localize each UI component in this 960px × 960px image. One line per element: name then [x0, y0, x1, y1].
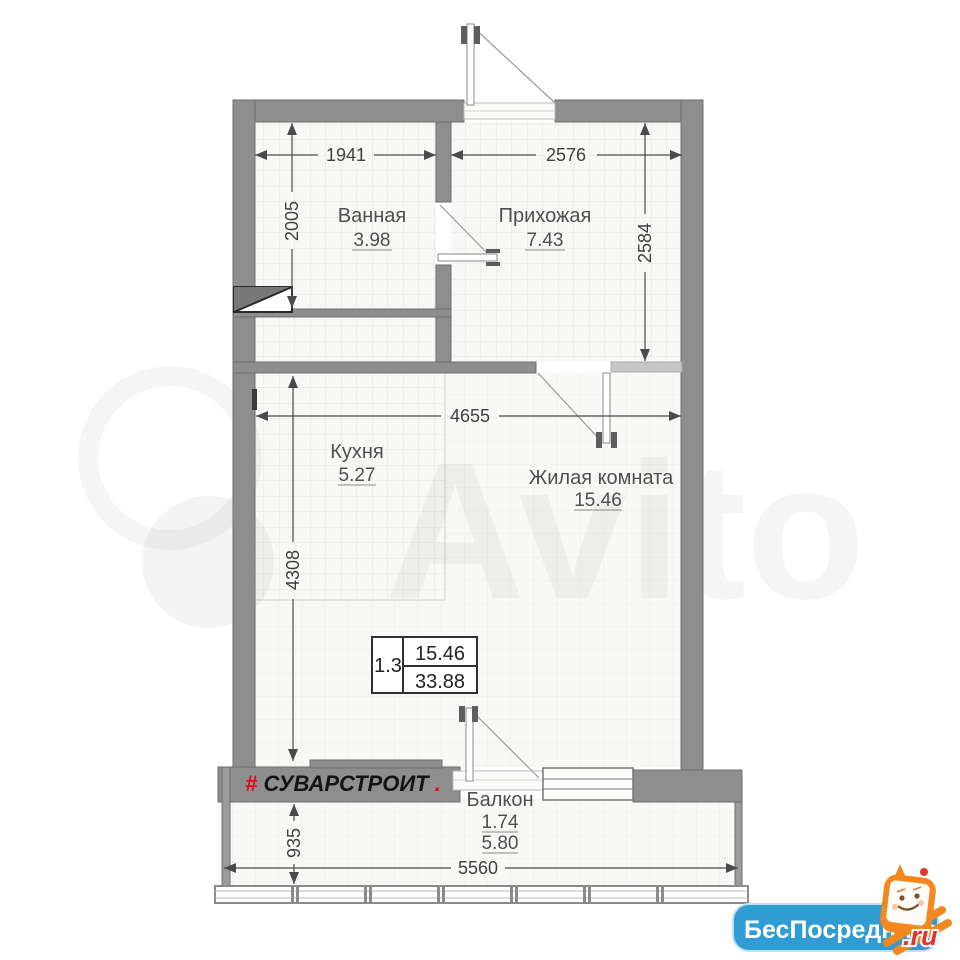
balcony-door-hinge	[459, 706, 465, 722]
wall-left	[233, 100, 255, 767]
wall-top-left	[233, 100, 464, 122]
balcony-door-hinge2	[472, 706, 478, 722]
room-area-balcony-reduced: 1.74	[482, 812, 519, 833]
room-label-hallway: Прихожая	[499, 205, 592, 227]
room-area-bathroom: 3.98	[354, 230, 391, 251]
room-label-kitchen: Кухня	[330, 441, 384, 463]
balcony-railing	[215, 886, 748, 903]
site-badge-tld: .ru	[903, 921, 938, 951]
room-area-hallway: 7.43	[527, 230, 564, 251]
room-area-balcony-full: 5.80	[482, 833, 519, 854]
room-area-living: 15.46	[574, 490, 622, 511]
entrance-door	[461, 24, 555, 119]
room-label-balcony: Балкон	[466, 789, 533, 811]
dim-label-bathroom-width: 1941	[326, 145, 366, 165]
balcony-door-leaf	[466, 708, 473, 781]
dim-label-living-width: 4655	[450, 406, 490, 426]
living-door-stop2	[611, 432, 617, 448]
wall-balcony-right-thin	[735, 802, 742, 888]
wall-balcony-right-block	[633, 770, 742, 802]
area-table-plan-type: 1.3	[374, 655, 402, 677]
radiator-mark	[252, 389, 257, 410]
area-table: 1.3 15.46 33.88	[372, 637, 477, 693]
entrance-door-hinge	[461, 26, 467, 44]
developer-logo-name: СУВАРСТРОИТ	[264, 771, 431, 796]
dim-label-hallway-width: 2576	[546, 145, 586, 165]
railing-band	[215, 886, 748, 903]
balcony-window	[543, 768, 633, 800]
dim-label-living-depth: 4308	[283, 550, 303, 590]
room-area-kitchen: 5.27	[339, 465, 376, 486]
wall-hall-living-light	[611, 362, 682, 372]
wall-bathroom-partition-top	[436, 122, 451, 202]
room-label-living: Жилая комната	[529, 467, 674, 489]
floor-plan-page: Avito	[0, 0, 960, 960]
balcony-window-frame	[543, 768, 633, 800]
developer-logo: # СУВАРСТРОИТ .	[245, 771, 441, 796]
wall-bathroom-partition-bottom	[436, 265, 451, 373]
wall-balcony-logo-step	[310, 760, 442, 768]
room-label-bathroom: Ванная	[338, 205, 407, 227]
living-door-stop	[596, 432, 602, 448]
site-badge: БесПосредника .ru	[733, 864, 948, 951]
developer-logo-hash: #	[245, 771, 258, 796]
entrance-door-leaf	[467, 24, 474, 105]
bathroom-door-stop2	[486, 262, 500, 266]
entrance-door-swing	[472, 26, 554, 102]
bathroom-door-leaf	[438, 254, 497, 261]
floor-plan: Avito	[0, 0, 960, 960]
entrance-door-hinge2	[474, 26, 480, 44]
developer-logo-dot: .	[435, 771, 441, 796]
watermark-brand-text: Avito	[385, 422, 865, 640]
dim-label-balcony-depth: 935	[284, 828, 304, 858]
wall-hall-living	[233, 362, 536, 373]
dim-label-bathroom-depth: 2005	[282, 201, 302, 241]
area-table-living: 15.46	[415, 643, 465, 665]
vent-shaft-icon	[234, 287, 292, 312]
living-door-leaf	[603, 373, 610, 443]
wall-right	[681, 100, 703, 772]
duct-niche-floor	[255, 317, 436, 362]
dim-label-balcony-width: 5560	[458, 858, 498, 878]
area-table-total: 33.88	[415, 671, 465, 693]
bathroom-door-stop	[486, 249, 500, 253]
dim-label-hallway-depth: 2584	[635, 223, 655, 263]
